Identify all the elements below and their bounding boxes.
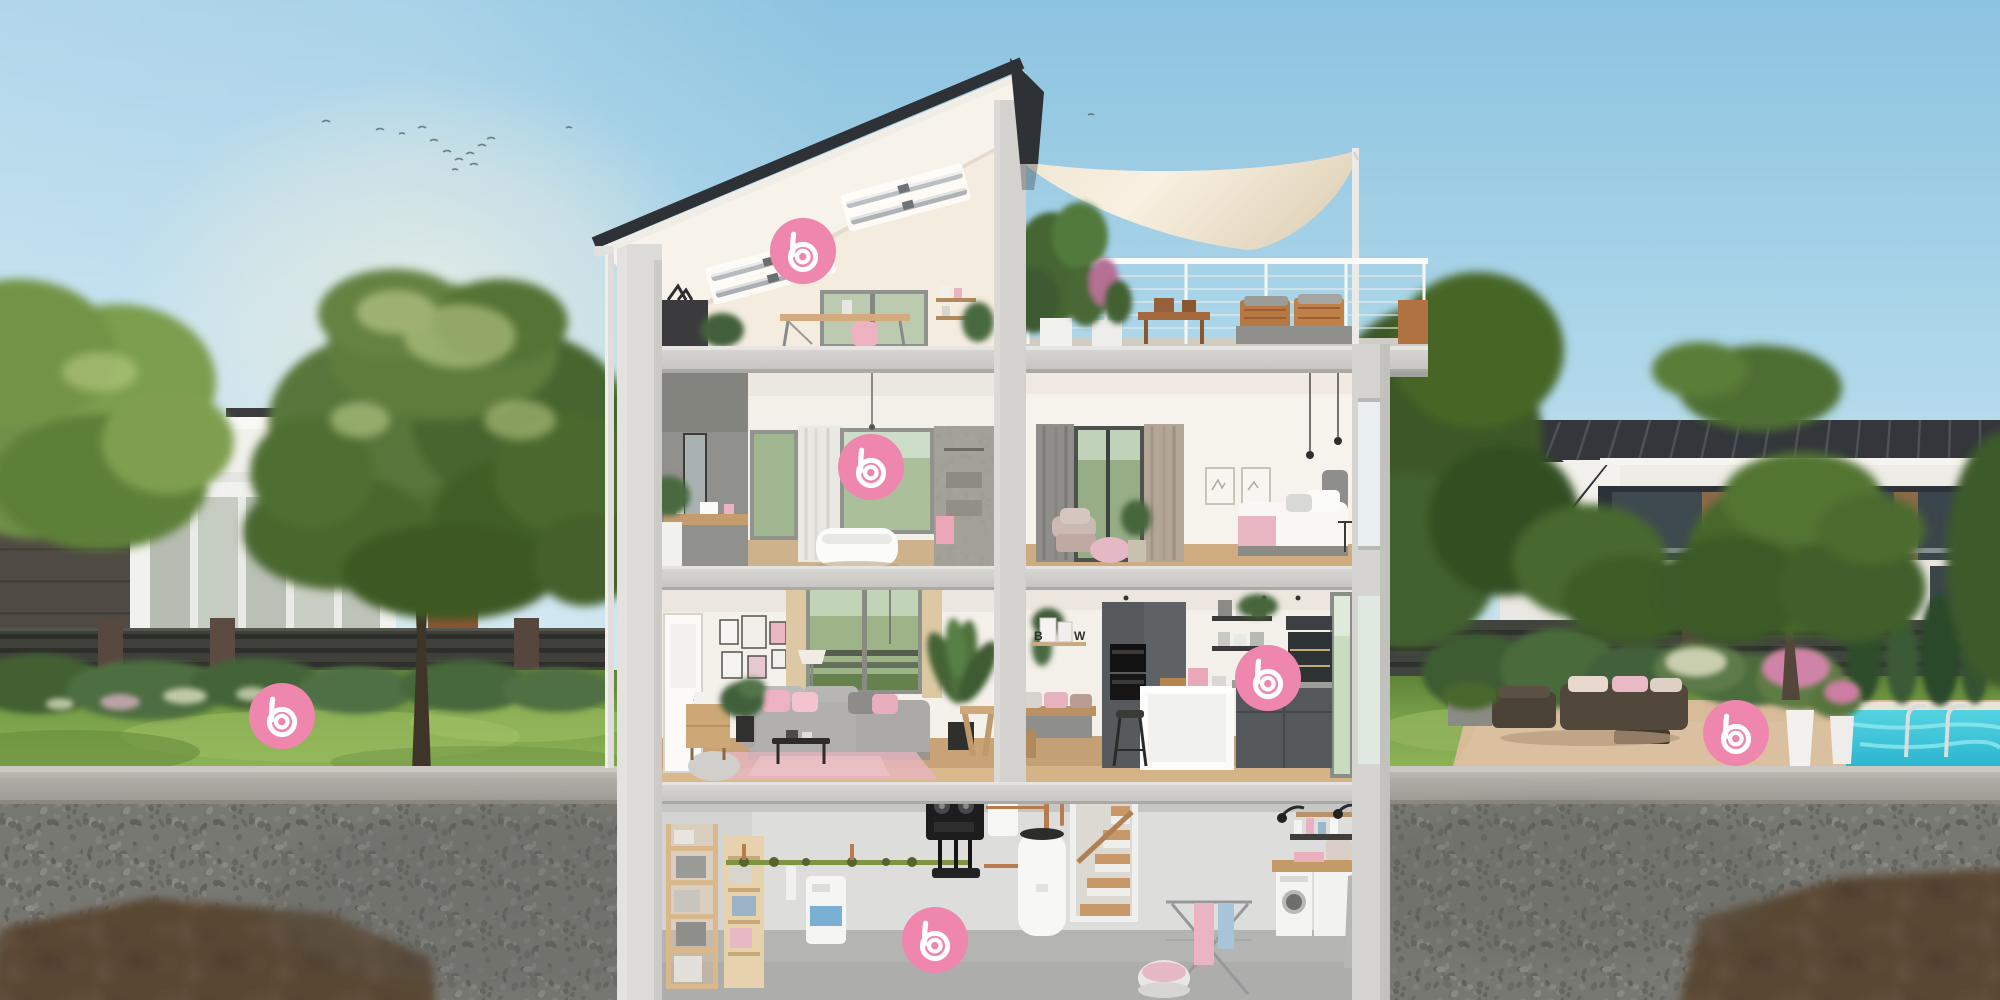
svg-text:B: B	[1034, 629, 1043, 643]
svg-text:W: W	[1074, 629, 1086, 643]
